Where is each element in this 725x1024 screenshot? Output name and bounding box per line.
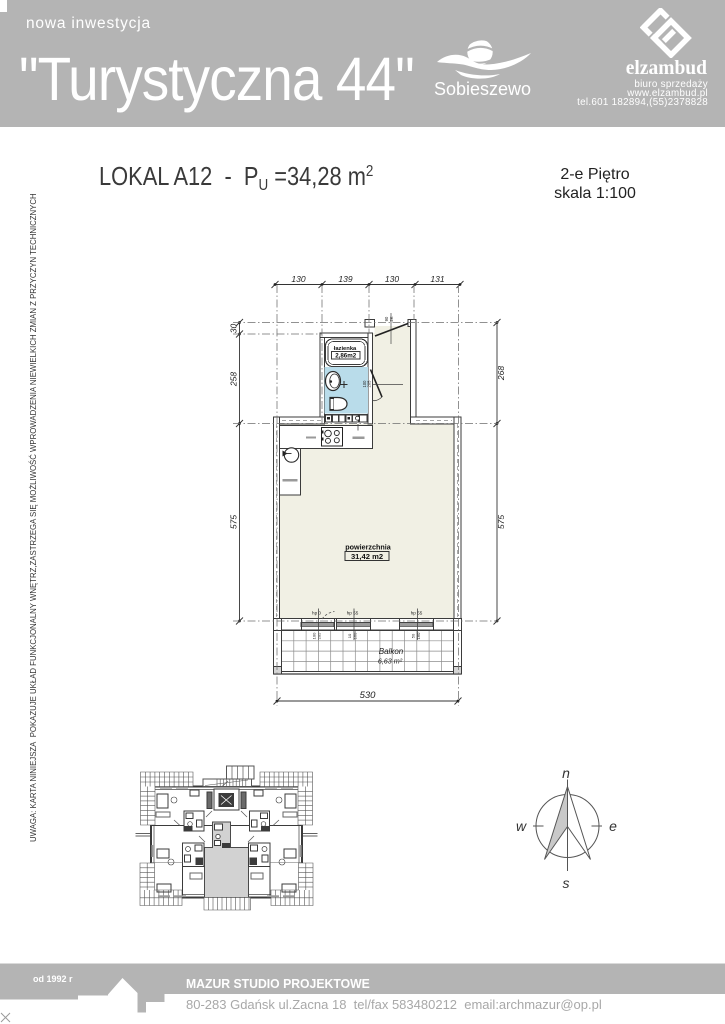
- svg-text:hp 0: hp 0: [312, 611, 321, 616]
- svg-text:hp 55: hp 55: [347, 611, 359, 616]
- svg-text:131: 131: [430, 274, 444, 284]
- svg-text:e: e: [609, 818, 617, 834]
- svg-text:530: 530: [360, 690, 377, 701]
- svg-text:hp 55: hp 55: [411, 611, 423, 616]
- svg-text:50: 50: [411, 633, 416, 638]
- svg-text:139: 139: [338, 274, 352, 284]
- svg-text:130: 130: [385, 274, 399, 284]
- svg-text:w: w: [516, 818, 527, 834]
- svg-text:6,63 m²: 6,63 m²: [378, 657, 403, 666]
- svg-text:30: 30: [229, 324, 239, 334]
- svg-text:268: 268: [496, 366, 506, 381]
- svg-text:575: 575: [229, 515, 239, 529]
- svg-text:205: 205: [367, 380, 372, 388]
- svg-text:powierzchnia: powierzchnia: [345, 543, 392, 552]
- svg-text:2,86m2: 2,86m2: [335, 353, 357, 360]
- svg-text:205: 205: [317, 632, 322, 639]
- svg-text:31,42 m2: 31,42 m2: [351, 552, 383, 561]
- svg-text:n: n: [562, 765, 570, 781]
- svg-text:130: 130: [291, 274, 305, 284]
- svg-text:s: s: [563, 875, 570, 891]
- svg-text:258: 258: [229, 372, 239, 387]
- svg-text:10: 10: [347, 633, 352, 638]
- svg-text:Balkon: Balkon: [379, 647, 404, 656]
- svg-text:575: 575: [496, 515, 506, 529]
- svg-text:2K: 2K: [389, 316, 394, 321]
